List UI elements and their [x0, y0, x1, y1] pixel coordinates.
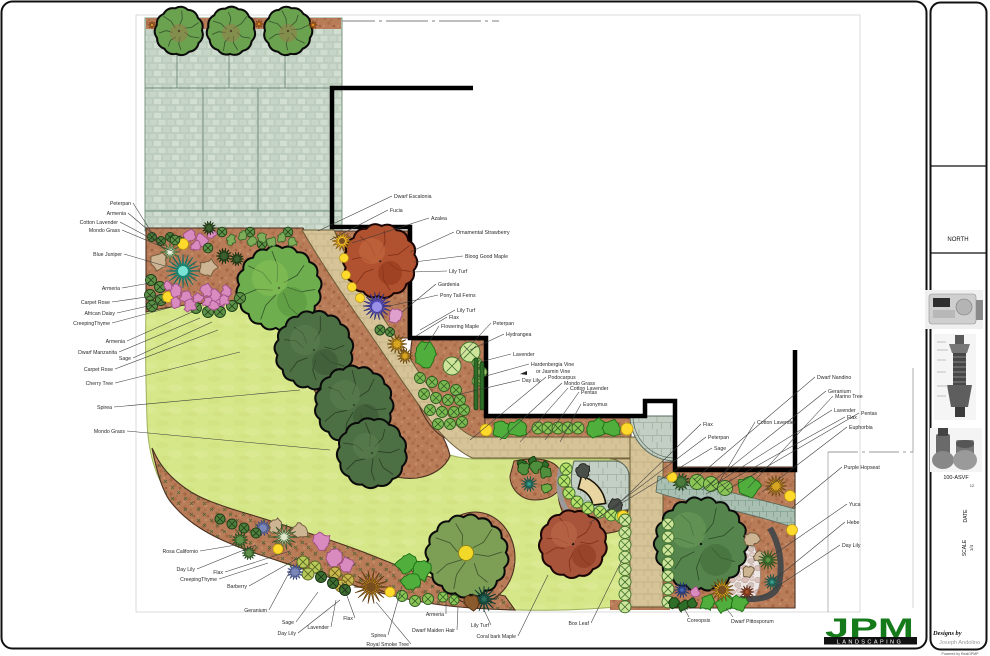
svg-text:Ornamental Strawberry: Ornamental Strawberry — [456, 230, 510, 236]
svg-text:Barberry: Barberry — [227, 584, 247, 590]
svg-text:Dwarf Escalonia: Dwarf Escalonia — [394, 194, 432, 200]
svg-text:Royal Smoke Tree: Royal Smoke Tree — [366, 642, 409, 648]
svg-text:CreepingThyme: CreepingThyme — [180, 577, 217, 583]
svg-text:Powered by RealOPMP: Powered by RealOPMP — [942, 652, 980, 656]
svg-text:Mondo Grass: Mondo Grass — [89, 228, 121, 234]
svg-text:Day Lily: Day Lily — [522, 378, 541, 384]
svg-text:Yuca: Yuca — [849, 502, 861, 508]
svg-text:Coral bark Maple: Coral bark Maple — [477, 634, 517, 640]
svg-text:Gardenia: Gardenia — [438, 282, 459, 288]
svg-text:Day Lily: Day Lily — [278, 631, 297, 637]
svg-text:Peterpan: Peterpan — [708, 435, 729, 441]
svg-text:Mondo Grass: Mondo Grass — [94, 429, 126, 435]
svg-text:Euonymus: Euonymus — [583, 402, 608, 408]
svg-text:Dwarf Pittosporum: Dwarf Pittosporum — [731, 619, 774, 625]
svg-text:Cotton Lavender: Cotton Lavender — [757, 420, 796, 426]
svg-text:Bloog Good Maple: Bloog Good Maple — [465, 254, 508, 260]
svg-text:Cotton Lavender: Cotton Lavender — [80, 220, 119, 226]
svg-text:Joseph Andolino: Joseph Andolino — [939, 640, 980, 646]
svg-text:Day Lily: Day Lily — [177, 567, 196, 573]
svg-text:Lavender: Lavender — [307, 625, 329, 631]
svg-text:Purple Hopseat: Purple Hopseat — [844, 465, 880, 471]
svg-text:Armenia: Armenia — [106, 339, 125, 345]
svg-text:Cherry Tree: Cherry Tree — [86, 381, 114, 387]
svg-text:Rosa Californio: Rosa Californio — [163, 549, 199, 555]
svg-text:Sage: Sage — [714, 446, 726, 452]
svg-text:Flax: Flax — [213, 570, 223, 576]
svg-text:Flax: Flax — [343, 616, 353, 622]
svg-text:Armenia: Armenia — [107, 211, 126, 217]
svg-text:Coreopsis: Coreopsis — [687, 618, 711, 624]
svg-text:Lavender: Lavender — [834, 408, 856, 414]
svg-text:Sage: Sage — [282, 620, 294, 626]
svg-text:1/4: 1/4 — [969, 544, 974, 551]
svg-text:Armeria: Armeria — [426, 612, 444, 618]
svg-text:Marino Tree: Marino Tree — [835, 394, 863, 400]
svg-text:Blue Juniper: Blue Juniper — [93, 252, 122, 258]
svg-text:Dwarf Manzanita: Dwarf Manzanita — [78, 350, 117, 356]
svg-text:African Daisy: African Daisy — [84, 311, 115, 317]
svg-text:NORTH: NORTH — [947, 237, 968, 243]
svg-text:Lily Turf: Lily Turf — [457, 308, 476, 314]
svg-text:Dwarf Nandino: Dwarf Nandino — [817, 375, 851, 381]
svg-text:Spirea: Spirea — [97, 405, 112, 411]
svg-text:100-ASVF: 100-ASVF — [943, 475, 969, 481]
svg-text:DATE: DATE — [963, 509, 969, 523]
svg-text:Lily Turf: Lily Turf — [471, 623, 490, 629]
svg-text:Flowering Maple: Flowering Maple — [441, 324, 479, 330]
svg-text:Flax: Flax — [847, 415, 857, 421]
svg-text:Designs by: Designs by — [932, 630, 962, 637]
svg-text:Pony Tail Ferns: Pony Tail Ferns — [440, 293, 476, 299]
svg-text:Carpet Rose: Carpet Rose — [84, 367, 113, 373]
svg-text:Flax: Flax — [449, 315, 459, 321]
svg-text:Hardenbergia Vine: Hardenbergia Vine — [531, 362, 574, 368]
svg-text:Carpet Rose: Carpet Rose — [81, 300, 110, 306]
svg-text:CreepingThyme: CreepingThyme — [73, 321, 110, 327]
svg-text:Pentas: Pentas — [861, 411, 878, 417]
svg-text:Hydrangea: Hydrangea — [506, 332, 531, 338]
svg-text:Azalea: Azalea — [431, 216, 447, 222]
svg-text:Armeria: Armeria — [102, 286, 120, 292]
svg-text:Flax: Flax — [703, 422, 713, 428]
svg-text:12: 12 — [970, 483, 975, 488]
svg-text:Lavender: Lavender — [513, 352, 535, 358]
svg-text:Hebe: Hebe — [847, 520, 860, 526]
svg-text:LANDSCAPING: LANDSCAPING — [837, 639, 904, 645]
svg-text:Peterpan: Peterpan — [493, 321, 514, 327]
svg-text:Fucia: Fucia — [390, 208, 403, 214]
svg-text:SCALE: SCALE — [962, 539, 968, 556]
svg-text:Day Lily: Day Lily — [842, 543, 861, 549]
svg-text:Dwarf Maiden Hair: Dwarf Maiden Hair — [412, 628, 455, 634]
svg-text:Sage: Sage — [119, 356, 131, 362]
svg-text:Geranium: Geranium — [244, 608, 267, 614]
svg-text:Lily Turf: Lily Turf — [449, 269, 468, 275]
svg-text:Peterpan: Peterpan — [110, 201, 131, 207]
svg-text:Spirea: Spirea — [371, 633, 386, 639]
svg-text:Pentas: Pentas — [581, 390, 598, 396]
svg-text:Box Leaf: Box Leaf — [569, 621, 590, 627]
svg-text:Euphorbia: Euphorbia — [849, 425, 873, 431]
